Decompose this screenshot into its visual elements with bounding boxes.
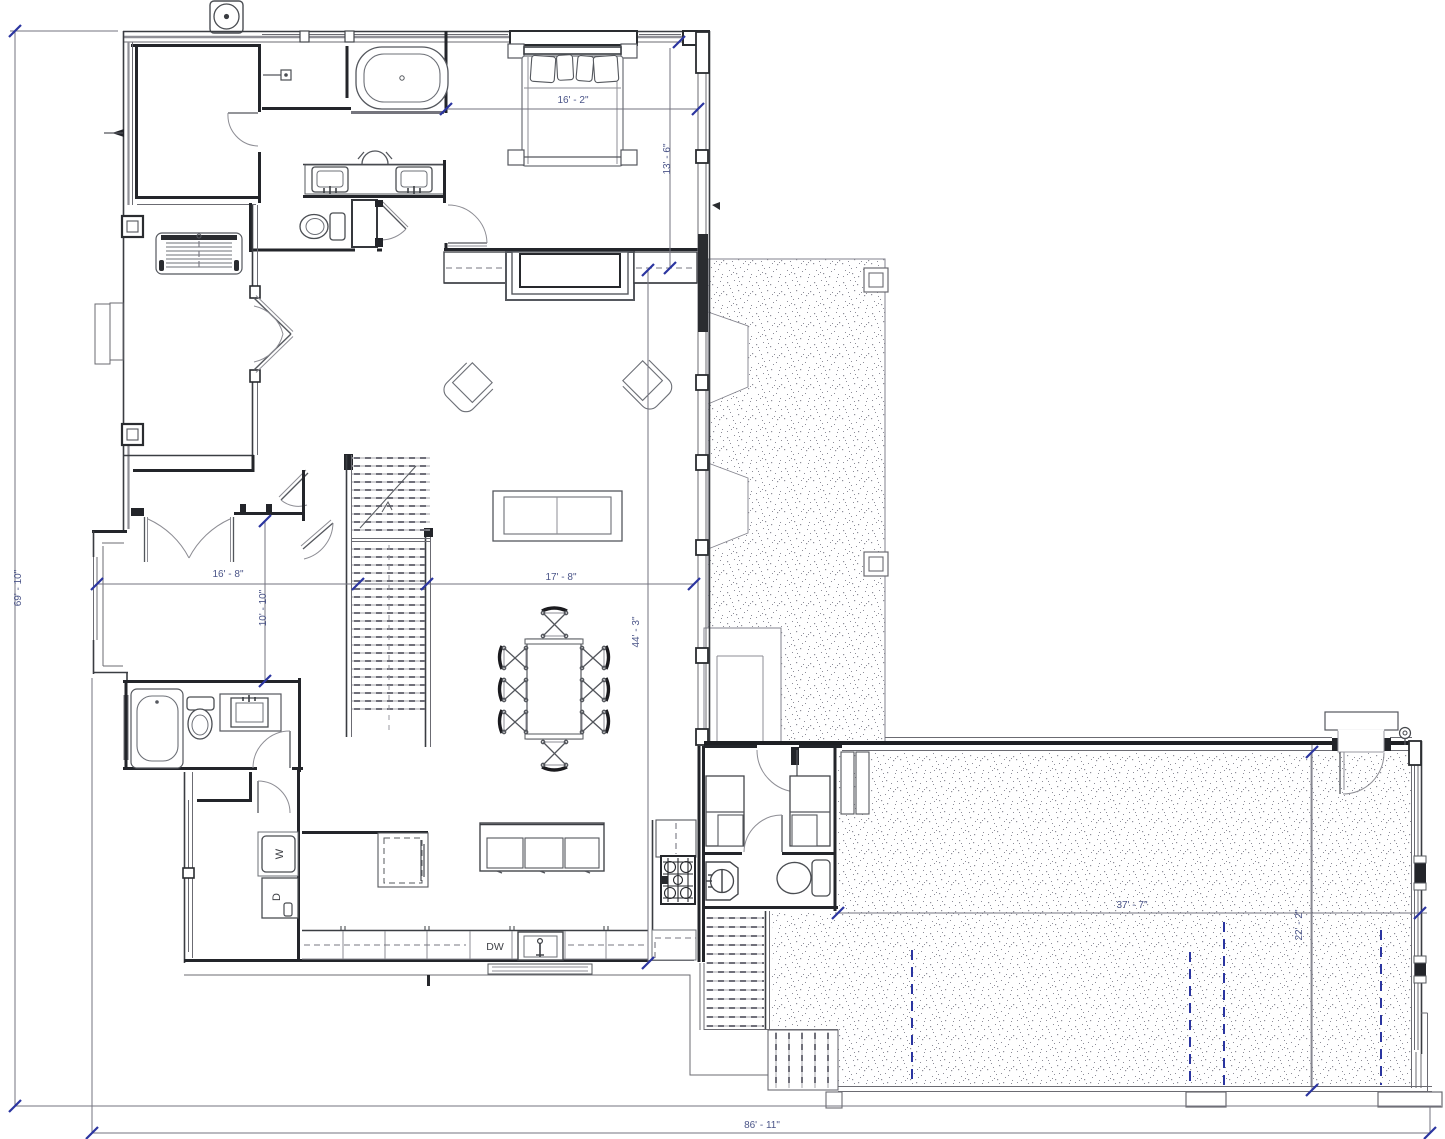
- svg-text:16' - 8": 16' - 8": [212, 569, 243, 580]
- svg-text:44' - 3": 44' - 3": [631, 616, 642, 647]
- svg-text:17' - 8": 17' - 8": [545, 572, 576, 583]
- svg-text:W: W: [274, 848, 286, 859]
- svg-text:22' - 2": 22' - 2": [1294, 909, 1305, 940]
- svg-text:10' - 10": 10' - 10": [258, 589, 269, 626]
- svg-text:37' - 7": 37' - 7": [1116, 900, 1147, 911]
- svg-text:13' - 6": 13' - 6": [662, 143, 673, 174]
- svg-text:16' - 2": 16' - 2": [557, 95, 588, 106]
- svg-text:69' - 10": 69' - 10": [13, 569, 24, 606]
- svg-text:D: D: [271, 893, 283, 901]
- svg-text:DW: DW: [486, 941, 504, 953]
- svg-text:86' - 11": 86' - 11": [744, 1120, 780, 1131]
